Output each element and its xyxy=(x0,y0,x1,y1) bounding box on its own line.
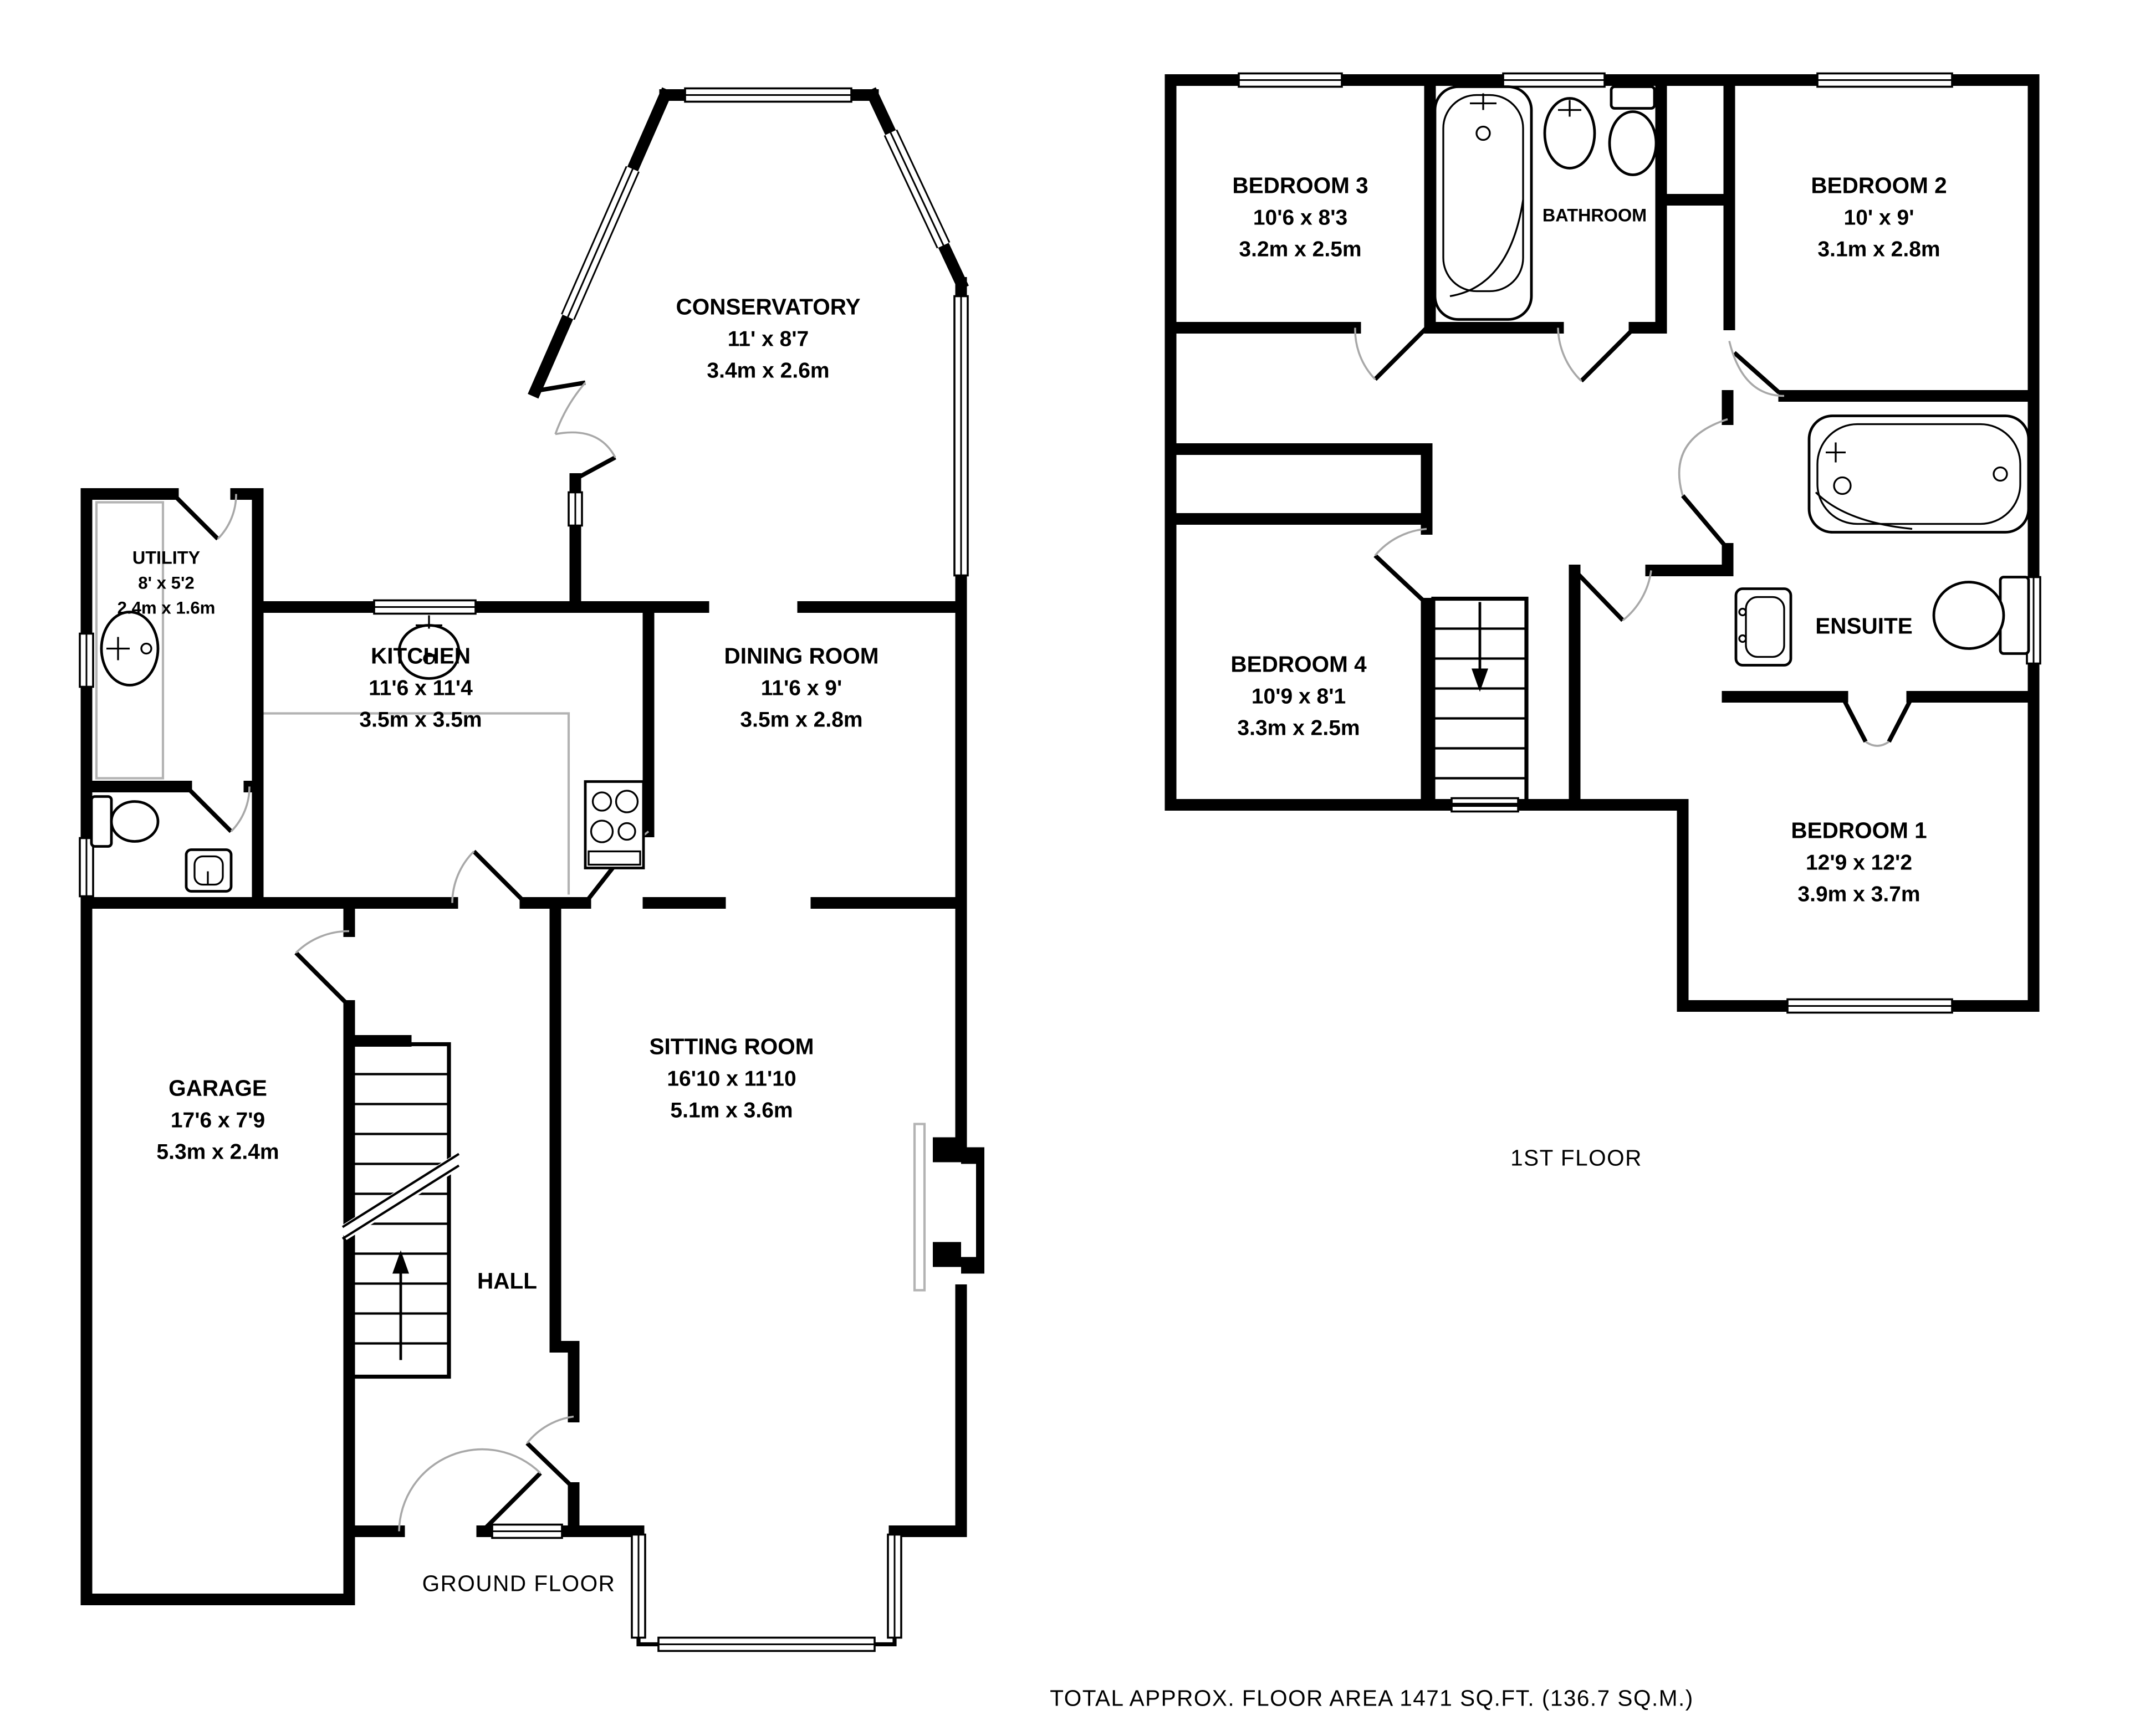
floorplan-drawing: UTILITY 8' x 5'2 2.4m x 1.6m KITCHEN 11'… xyxy=(0,0,2135,1736)
ensuite-bath xyxy=(1809,416,2029,532)
bathroom-sink xyxy=(1545,99,1595,168)
room-dim-conservatory-imperial: 11' x 8'7 xyxy=(728,327,809,351)
room-label-utility: UTILITY xyxy=(132,548,201,568)
room-dim-utility-metric: 2.4m x 1.6m xyxy=(118,598,216,618)
staircase-first xyxy=(1433,599,1526,805)
room-label-kitchen: KITCHEN xyxy=(371,643,471,669)
room-label-ensuite: ENSUITE xyxy=(1815,613,1913,639)
utility-sink xyxy=(101,612,158,685)
bathroom-toilet xyxy=(1610,87,1656,175)
room-dim-utility-imperial: 8' x 5'2 xyxy=(138,573,195,593)
bathroom-bath xyxy=(1435,87,1531,320)
room-label-dining-room: DINING ROOM xyxy=(724,643,879,669)
caption-total-area: TOTAL APPROX. FLOOR AREA 1471 SQ.FT. (13… xyxy=(1050,1686,1693,1711)
fireplace xyxy=(933,1138,984,1274)
staircase-ground xyxy=(343,1044,459,1377)
floorplan-page: UTILITY 8' x 5'2 2.4m x 1.6m KITCHEN 11'… xyxy=(0,0,2135,1736)
room-dim-bedroom3-metric: 3.2m x 2.5m xyxy=(1239,238,1361,262)
wc-basin xyxy=(186,850,231,892)
caption-ground-floor: GROUND FLOOR xyxy=(422,1571,616,1596)
room-dim-sitting-metric: 5.1m x 3.6m xyxy=(670,1099,793,1123)
room-dim-bedroom2-imperial: 10' x 9' xyxy=(1844,206,1914,230)
room-dim-bedroom4-metric: 3.3m x 2.5m xyxy=(1237,716,1360,740)
room-label-bedroom-1: BEDROOM 1 xyxy=(1791,818,1927,843)
first-floor-plan: BEDROOM 3 10'6 x 8'3 3.2m x 2.5m BATHROO… xyxy=(1171,74,2040,1171)
room-label-bathroom: BATHROOM xyxy=(1542,206,1647,226)
ensuite-sink xyxy=(1736,589,1791,665)
room-label-hall: HALL xyxy=(477,1268,537,1294)
ground-floor-plan: UTILITY 8' x 5'2 2.4m x 1.6m KITCHEN 11'… xyxy=(80,89,984,1651)
room-dim-conservatory-metric: 3.4m x 2.6m xyxy=(707,359,829,383)
room-label-sitting-room: SITTING ROOM xyxy=(650,1034,814,1059)
room-label-conservatory: CONSERVATORY xyxy=(676,294,860,320)
room-label-bedroom-4: BEDROOM 4 xyxy=(1230,652,1367,677)
hearth xyxy=(915,1124,925,1291)
room-dim-garage-metric: 5.3m x 2.4m xyxy=(156,1140,279,1164)
caption-first-floor: 1ST FLOOR xyxy=(1510,1145,1642,1171)
room-dim-dining-metric: 3.5m x 2.8m xyxy=(740,708,862,732)
room-dim-bedroom2-metric: 3.1m x 2.8m xyxy=(1817,238,1940,262)
kitchen-hob xyxy=(585,782,643,868)
room-dim-bedroom1-metric: 3.9m x 3.7m xyxy=(1797,883,1920,907)
room-label-garage: GARAGE xyxy=(168,1076,267,1101)
room-dim-bedroom3-imperial: 10'6 x 8'3 xyxy=(1253,206,1347,230)
room-dim-bedroom4-imperial: 10'9 x 8'1 xyxy=(1252,685,1346,709)
room-dim-bedroom1-imperial: 12'9 x 12'2 xyxy=(1806,851,1912,875)
room-dim-sitting-imperial: 16'10 x 11'10 xyxy=(667,1067,796,1091)
room-dim-kitchen-metric: 3.5m x 3.5m xyxy=(359,708,482,732)
room-dim-garage-imperial: 17'6 x 7'9 xyxy=(171,1109,265,1133)
room-dim-kitchen-imperial: 11'6 x 11'4 xyxy=(369,677,473,700)
room-dim-dining-imperial: 11'6 x 9' xyxy=(761,677,842,700)
room-label-bedroom-2: BEDROOM 2 xyxy=(1811,173,1947,198)
room-label-bedroom-3: BEDROOM 3 xyxy=(1232,173,1368,198)
ensuite-toilet xyxy=(1934,577,2029,654)
wc-toilet xyxy=(91,797,158,847)
